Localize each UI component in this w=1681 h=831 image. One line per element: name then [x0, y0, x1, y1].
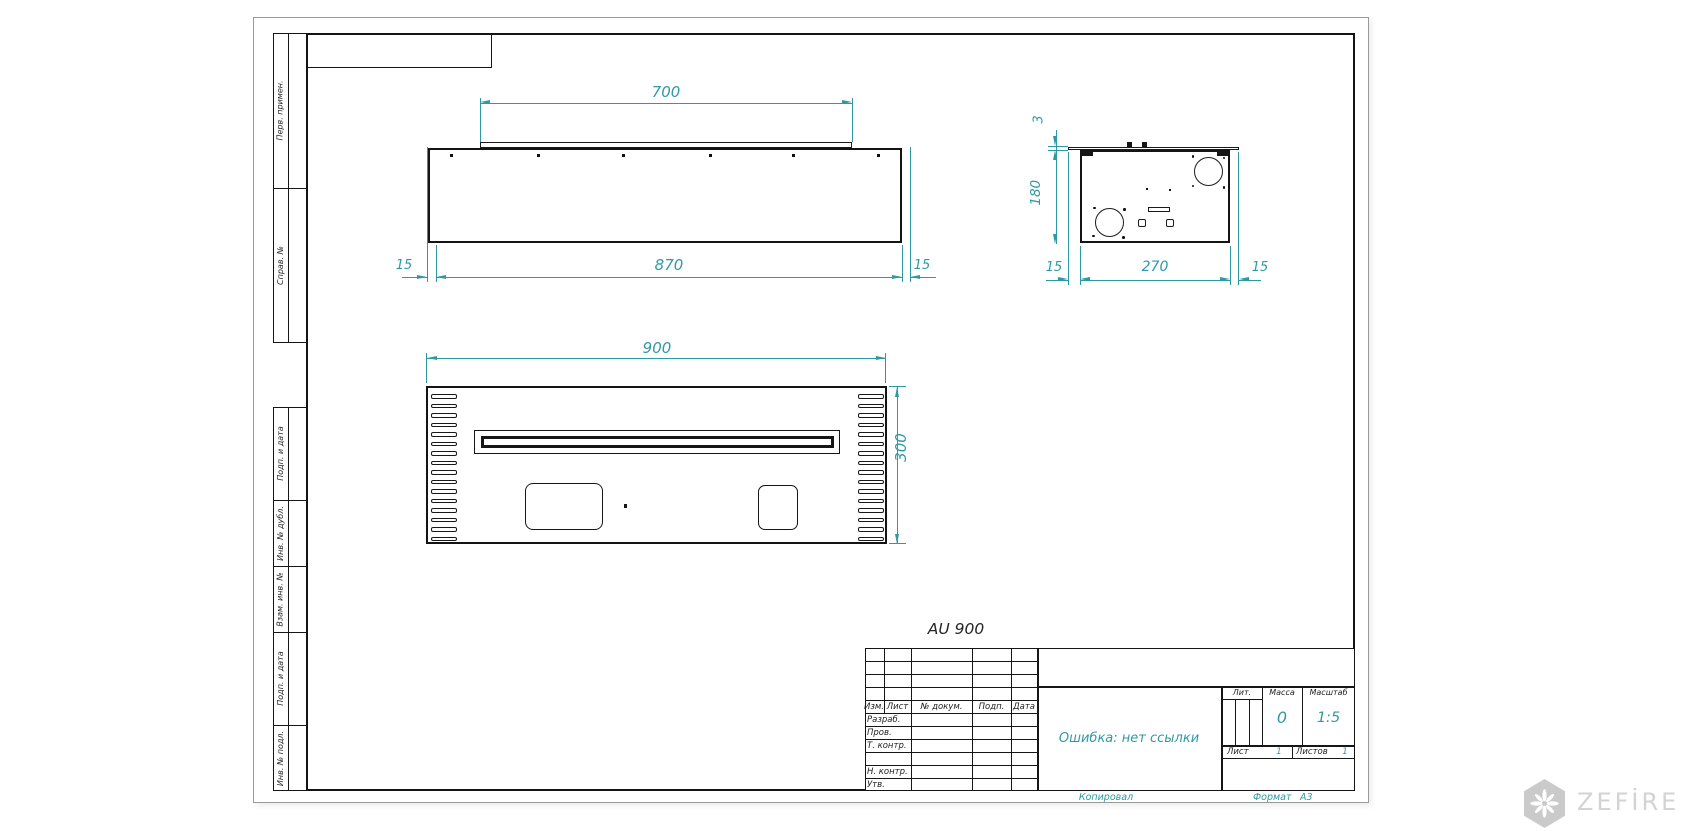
tb-mass-label: Масса [1262, 689, 1302, 697]
tb-line [865, 778, 1037, 779]
copied-label: Копировал [1072, 793, 1140, 803]
tb-sheets-value: 1 [1338, 748, 1352, 757]
fan-opening [1194, 157, 1223, 186]
vent-slot [858, 527, 884, 532]
stamp-label: Инв. № дубл. [276, 506, 285, 561]
top-left-reference-cell [306, 33, 492, 68]
tb-line [865, 739, 1037, 740]
dim-180-label: 180 [1026, 173, 1048, 213]
vent-slot [858, 413, 884, 418]
vent-slot [431, 404, 457, 409]
tb-line [865, 674, 1037, 675]
tb-sheet-label: Лист [1227, 748, 1249, 757]
arrowhead [417, 275, 427, 279]
vent-slot [431, 432, 457, 437]
vent-grille-right [858, 394, 884, 541]
tb-row-tkontr: Т. контр. [867, 742, 907, 751]
vent-slot [431, 442, 457, 447]
tb-line [865, 752, 1037, 753]
side-tab [1127, 142, 1133, 148]
screw-hole [622, 154, 625, 157]
tb-header-izm: Изм. [864, 703, 884, 712]
small-cutout [1166, 219, 1174, 227]
stamp-podp-data-1: Подп. и дата [273, 407, 289, 500]
tb-row-nkontr: Н. контр. [867, 768, 908, 777]
arrowhead [842, 100, 852, 104]
dim-900-label: 900 [635, 341, 679, 356]
extension-line [427, 147, 428, 282]
tb-lit-label: Лит. [1222, 689, 1262, 697]
vent-slot [858, 404, 884, 409]
tb-header-list: Лист [884, 703, 911, 712]
dim-3-label: 3 [1030, 110, 1048, 128]
tb-header-doc: № докум. [911, 703, 972, 712]
arrowhead [1080, 277, 1090, 281]
vent-slot [858, 537, 884, 542]
arrowhead [480, 100, 490, 104]
pin-hole [1169, 189, 1171, 191]
drawing-canvas: Перв. примен. Справ. № Подп. и дата Инв.… [0, 0, 1681, 831]
vent-slot [431, 413, 457, 418]
tb-line [1011, 648, 1012, 791]
screw-hole [877, 154, 880, 157]
vent-slot [431, 499, 457, 504]
tb-header-data: Дата [1011, 703, 1037, 712]
tb-header-podp: Подп. [972, 703, 1011, 712]
burner-slot-inner [481, 436, 834, 448]
stamp-sprav-no: Справ. № [273, 188, 289, 343]
extension-line [1238, 152, 1239, 285]
tb-row-prov: Пров. [867, 729, 892, 738]
small-cutout [1138, 219, 1146, 227]
tb-scale-label: Масштаб [1302, 689, 1355, 697]
tb-sheets-label: Листов [1296, 748, 1328, 757]
arrowhead [1058, 277, 1068, 281]
dimension-line [427, 358, 886, 359]
tb-line [1292, 745, 1293, 758]
vent-grille-left [431, 394, 457, 541]
tb-sheet-value: 1 [1272, 748, 1286, 757]
arrowhead [876, 356, 886, 360]
stamp-label: Взам. инв. № [276, 572, 285, 626]
vent-slot [858, 432, 884, 437]
vent-slot [858, 394, 884, 399]
tb-mass-value: 0 [1262, 710, 1302, 726]
tb-row-utv: Утв. [867, 781, 885, 790]
arrowhead [436, 275, 446, 279]
extension-line [1048, 150, 1068, 151]
arrowhead [427, 356, 437, 360]
stamp-perv-primen: Перв. примен. [273, 33, 289, 188]
tb-scale-value: 1:5 [1302, 711, 1355, 726]
stamp-label: Подп. и дата [276, 651, 285, 706]
arrowhead [1053, 136, 1057, 146]
vent-slot [858, 470, 884, 475]
dim-300-label: 300 [890, 428, 912, 466]
dim-870-label: 870 [645, 258, 693, 273]
vent-slot [858, 508, 884, 513]
extension-line [1048, 146, 1068, 147]
screw-hole [709, 154, 712, 157]
vent-slot [858, 423, 884, 428]
vent-slot [431, 489, 457, 494]
stamp-label: Инв. № подл. [276, 730, 285, 785]
arrowhead [892, 275, 902, 279]
fan-mount-hole [1192, 185, 1195, 188]
fan-opening [1095, 208, 1124, 237]
stamp-label: Подп. и дата [276, 426, 285, 481]
arrowhead [1220, 277, 1230, 281]
dim-15-right-label: 15 [908, 259, 936, 272]
arrowhead [895, 387, 899, 397]
pin-hole [1146, 188, 1148, 190]
tb-line [1235, 699, 1236, 745]
tb-doc-name: Ошибка: нет ссылки [1059, 732, 1199, 745]
pin-hole [624, 504, 627, 508]
screw-hole [450, 154, 453, 157]
drawing-title: AU 900 [926, 622, 986, 638]
dimension-line [1080, 280, 1230, 281]
vent-slot [431, 480, 457, 485]
screw-hole [792, 154, 795, 157]
stamp-label: Перв. примен. [276, 80, 285, 140]
zefire-logo-icon [1521, 778, 1568, 831]
vent-slot [431, 451, 457, 456]
fan-mount-hole [1122, 236, 1125, 239]
format-label: Формат [1253, 793, 1292, 803]
vent-slot [858, 461, 884, 466]
vent-slot [858, 442, 884, 447]
dim-15-right-label: 15 [1246, 261, 1274, 274]
side-tab [1142, 142, 1148, 148]
dimension-line [436, 277, 903, 278]
vent-slot [858, 489, 884, 494]
tb-line [1221, 699, 1262, 700]
dim-15-left-label: 15 [390, 259, 418, 272]
dimension-line [480, 103, 852, 104]
zefire-wordmark: ZEFİRE [1577, 788, 1679, 816]
fan-mount-hole [1123, 208, 1126, 211]
arrowhead [1053, 234, 1057, 244]
stamp-inv-dubl: Инв. № дубл. [273, 500, 289, 566]
stamp-inv-podl: Инв. № подл. [273, 725, 289, 791]
vent-slot [858, 499, 884, 504]
tb-row-razrab: Разраб. [867, 716, 900, 725]
extension-line [852, 98, 853, 142]
dim-270-label: 270 [1133, 260, 1177, 274]
vent-slot [431, 470, 457, 475]
dim-700-label: 700 [645, 85, 687, 100]
arrowhead [895, 534, 899, 544]
stamp-podp-data-2: Подп. и дата [273, 632, 289, 725]
fan-mount-hole [1093, 207, 1096, 210]
vent-slot [858, 451, 884, 456]
arrowhead [1053, 150, 1057, 160]
tb-doc-name-cell: Ошибка: нет ссылки [1037, 686, 1221, 791]
dim-15-left-label: 15 [1040, 261, 1068, 274]
tb-line [865, 765, 1037, 766]
side-wall-section [1082, 151, 1093, 156]
zefire-watermark: ZEFİRE [1521, 778, 1681, 831]
fan-mount-hole [1223, 186, 1226, 189]
vent-slot [431, 537, 457, 542]
screw-hole [537, 154, 540, 157]
cable-slot [1148, 207, 1170, 212]
vent-slot [431, 423, 457, 428]
extension-line [480, 98, 481, 142]
dimension-line [1056, 130, 1057, 244]
tb-line [972, 648, 973, 791]
stamp-vzam-inv: Взам. инв. № [273, 566, 289, 632]
arrowhead [910, 275, 920, 279]
front-body [428, 148, 902, 243]
tb-line [865, 726, 1037, 727]
arrowhead [1239, 277, 1249, 281]
service-opening-left [525, 483, 603, 530]
tb-line [1249, 699, 1250, 745]
format-value: A3 [1300, 793, 1313, 803]
top-body [426, 386, 887, 544]
vent-slot [858, 480, 884, 485]
tb-line [865, 687, 1037, 688]
tb-line [865, 661, 1037, 662]
tb-line [911, 648, 912, 791]
side-wall-section [1217, 151, 1228, 156]
tb-line [1221, 686, 1223, 791]
fan-mount-hole [1092, 235, 1095, 238]
vent-slot [431, 508, 457, 513]
vent-slot [431, 461, 457, 466]
vent-slot [431, 394, 457, 399]
tb-line [1221, 758, 1355, 759]
vent-slot [858, 518, 884, 523]
vent-slot [431, 518, 457, 523]
stamp-label: Справ. № [276, 246, 285, 285]
fan-mount-hole [1223, 157, 1226, 160]
vent-slot [431, 527, 457, 532]
service-opening-right [758, 485, 798, 530]
fan-mount-hole [1192, 155, 1195, 158]
